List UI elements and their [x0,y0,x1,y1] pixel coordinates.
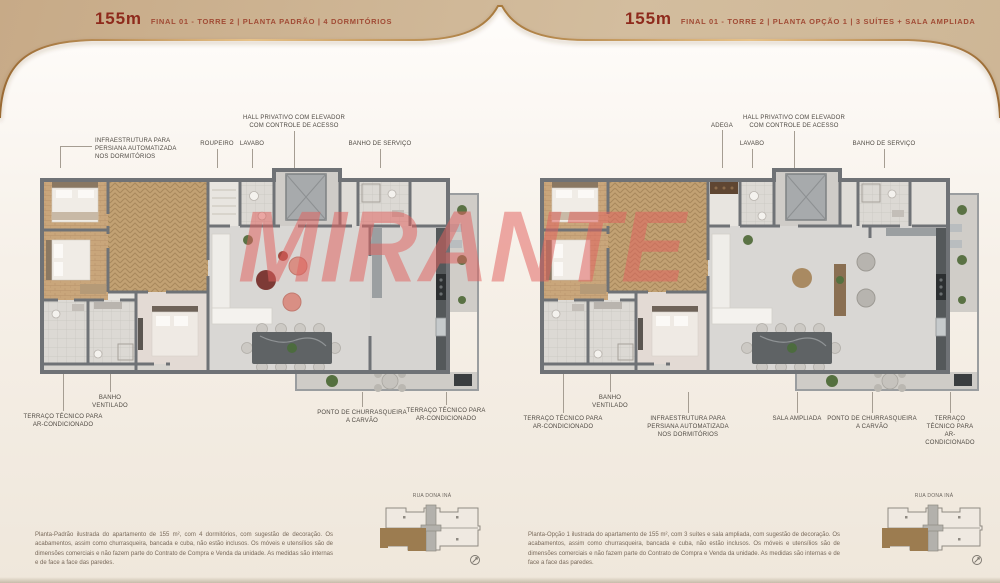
leader-line [688,392,689,413]
area-label: 155m [95,9,142,29]
compass-icon [471,556,480,565]
closet-roupeiro [208,182,240,226]
key-plan-left [380,500,484,568]
bed [52,182,98,222]
label-banho-ventilado: BANHO VENTILADO [92,394,128,410]
label-lavabo: LAVABO [740,140,764,148]
bed [552,182,598,222]
side-table [278,251,288,261]
panel-header-left: 155m FINAL 01 - TORRE 2 | PLANTA PADRÃO … [95,9,392,29]
unit-highlight [380,528,426,551]
label-infra-persiana: INFRAESTRUTURA PARA PERSIANA AUTOMATIZAD… [647,415,729,439]
armchair [289,257,307,275]
leader-line [722,130,723,168]
coffee-table [792,268,812,288]
floor-plan-opcao1 [540,168,980,392]
street-label: RUA DONA INÁ [915,493,954,499]
compass-icon [973,556,982,565]
label-hall-privativo: HALL PRIVATIVO COM ELEVADOR COM CONTROLE… [743,114,845,130]
disclaimer-right: Planta-Opção 1 ilustrada do apartamento … [528,531,840,568]
floor-plan-padrao [40,168,480,392]
leader-line [872,392,873,413]
coffee-table [256,270,276,290]
leader-line [60,146,61,168]
service-area [910,182,948,226]
leader-line [294,131,295,168]
plant [243,235,253,245]
armchair [283,293,301,311]
label-adega: ADEGA [711,122,733,130]
leader-line [794,131,795,168]
armchair [857,253,875,271]
label-terraco-tecnico: TERRAÇO TÉCNICO PARA AR-CONDICIONADO [925,415,975,447]
service-area [410,182,448,226]
label-hall-privativo: HALL PRIVATIVO COM ELEVADOR COM CONTROLE… [243,114,345,130]
label-churrasqueira: PONTO DE CHURRASQUEIRA A CARVÃO [317,409,407,425]
label-lavabo: LAVABO [240,140,264,148]
label-banho-servico: BANHO DE SERVIÇO [349,140,412,148]
page-edge-shadow [0,577,1000,583]
label-terraco-tecnico: TERRAÇO TÉCNICO PARA AR-CONDICIONADO [406,407,485,423]
street-label: RUA DONA INÁ [413,493,452,499]
leader-line [217,149,218,168]
disclaimer-left: Planta-Padrão ilustrada do apartamento d… [35,531,333,568]
hall-floor [608,180,708,292]
leader-line [752,149,753,168]
lavabo-room [740,182,774,226]
leader-line [380,149,381,168]
key-plan-right [882,500,986,568]
service-bath [858,182,910,226]
plan-title: FINAL 01 - TORRE 2 | PLANTA PADRÃO | 4 D… [151,17,392,26]
leader-line [252,149,253,168]
plan-title: FINAL 01 - TORRE 2 | PLANTA OPÇÃO 1 | 3 … [681,17,976,26]
console-table [834,264,846,316]
leader-line [797,392,798,413]
area-label: 155m [625,9,672,29]
leader-line [610,374,611,392]
label-roupeiro: ROUPEIRO [200,140,233,148]
label-sala-ampliada: SALA AMPLIADA [772,415,821,423]
leader-line [110,374,111,392]
label-churrasqueira: PONTO DE CHURRASQUEIRA A CARVÃO [827,415,917,431]
plant [836,276,844,284]
brochure-page: 155m FINAL 01 - TORRE 2 | PLANTA PADRÃO … [0,0,1000,583]
hall-floor [108,180,208,292]
plant [743,235,753,245]
label-banho-ventilado: BANHO VENTILADO [592,394,628,410]
label-infra-persiana: INFRAESTRUTURA PARA PERSIANA AUTOMATIZAD… [95,137,177,161]
leader-line [63,374,64,411]
service-bath [358,182,410,226]
leader-line [362,392,363,407]
leader-line [446,392,447,405]
leader-line [60,146,92,147]
label-banho-servico: BANHO DE SERVIÇO [853,140,916,148]
label-terraco-tecnico: TERRAÇO TÉCNICO PARA AR-CONDICIONADO [23,413,102,429]
lavabo-room [240,182,274,226]
panel-header-right: 155m FINAL 01 - TORRE 2 | PLANTA OPÇÃO 1… [625,9,976,29]
leader-line [884,149,885,168]
armchair [857,289,875,307]
leader-line [950,392,951,413]
label-terraco-tecnico: TERRAÇO TÉCNICO PARA AR-CONDICIONADO [523,415,602,431]
unit-highlight [882,528,928,551]
leader-line [563,374,564,413]
